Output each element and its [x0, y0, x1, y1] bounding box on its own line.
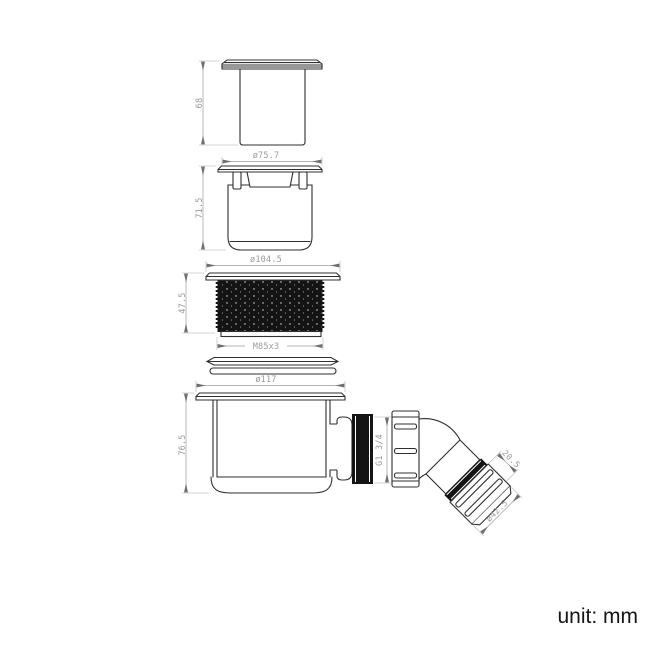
body-diameter-dimension: ø117 [196, 375, 345, 392]
trap-body [196, 393, 373, 493]
elbow-angled-assembly: 20.5 ø42.5 [424, 421, 539, 536]
top-cap [222, 60, 322, 145]
gaskets [207, 358, 338, 375]
ring-height-label: 47.5 [178, 292, 188, 313]
drawing-canvas: 68 ø75.7 71.5 ø104.5 [0, 0, 650, 650]
insert-height-dimension: 71.5 [195, 166, 226, 250]
ring-threaded-body [218, 281, 322, 332]
ring-bottom-band [221, 332, 321, 337]
body-height-dimension: 76.5 [178, 393, 209, 493]
outlet-thread-dimension: G1 3/4 [374, 417, 391, 483]
body-outlet [330, 414, 373, 484]
elbow-outer-arc [419, 419, 460, 440]
insert-cup [218, 166, 322, 250]
body-bottom-shell [211, 477, 332, 493]
unit-note: unit: mm [557, 605, 638, 628]
cap-height-label: 68 [195, 98, 205, 109]
ring-diameter-label: ø104.5 [250, 255, 282, 265]
elbow-inner-arc [419, 474, 426, 479]
outlet-neck [337, 417, 352, 480]
insert-body [228, 185, 312, 250]
lock-ring [206, 273, 340, 337]
ring-thread-dimension: M85x3 [217, 337, 323, 352]
elbow-segment-label: 20.5 [499, 448, 521, 470]
outlet-thread-label: G1 3/4 [375, 434, 385, 466]
body-diameter-label: ø117 [255, 375, 276, 385]
elbow-fitting: 20.5 ø42.5 [392, 411, 539, 536]
cap-height-dimension: 68 [195, 61, 238, 145]
technical-drawing: 68 ø75.7 71.5 ø104.5 [0, 0, 650, 650]
insert-left-tab [233, 172, 241, 189]
insert-height-label: 71.5 [195, 197, 205, 218]
cap-body [240, 69, 305, 145]
insert-recess [247, 172, 293, 187]
insert-diameter-dimension: ø75.7 [222, 151, 322, 165]
body-height-label: 76.5 [178, 434, 188, 455]
ring-height-dimension: 47.5 [178, 273, 215, 333]
insert-right-tab [299, 172, 307, 189]
insert-diameter-label: ø75.7 [253, 151, 280, 161]
ring-diameter-dimension: ø104.5 [206, 255, 340, 272]
ring-thread-label: M85x3 [253, 342, 280, 352]
lower-gasket [210, 368, 336, 374]
